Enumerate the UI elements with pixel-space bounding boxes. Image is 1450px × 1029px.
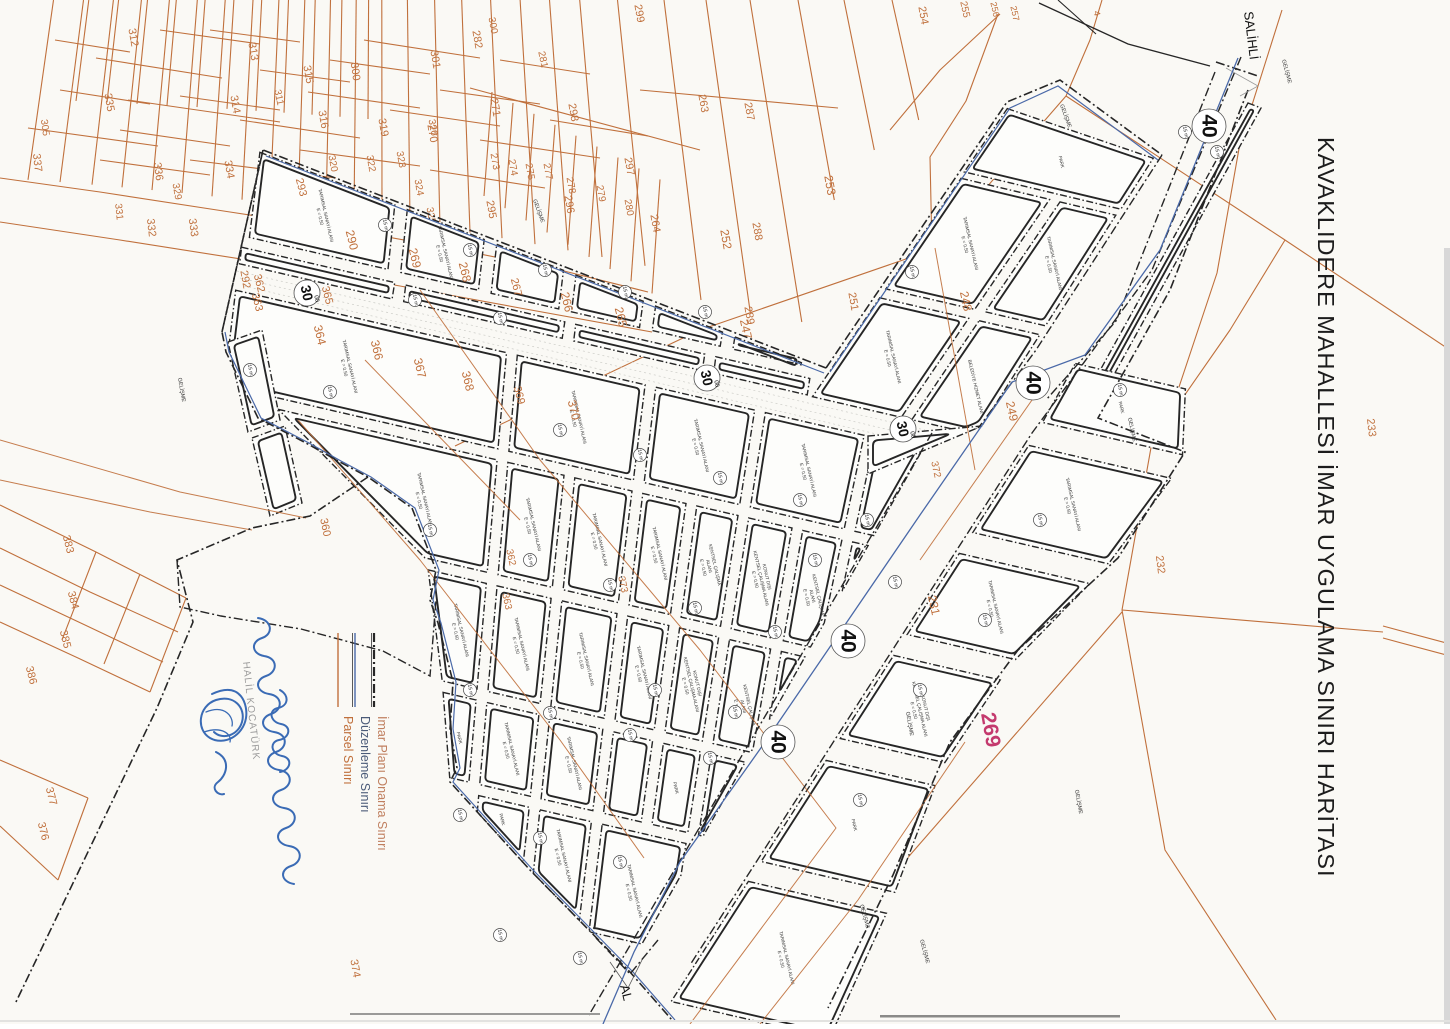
svg-text:332: 332 — [144, 218, 158, 238]
svg-text:337: 337 — [30, 153, 44, 173]
svg-text:İmar Planı Onama Sınırı: İmar Planı Onama Sınırı — [375, 716, 389, 851]
svg-text:331: 331 — [112, 203, 125, 221]
svg-text:333: 333 — [186, 218, 200, 238]
svg-text:232: 232 — [1153, 555, 1167, 575]
svg-text:40: 40 — [767, 730, 790, 753]
svg-text:Düzenleme Sınırı: Düzenleme Sınırı — [358, 716, 372, 813]
svg-text:300: 300 — [348, 62, 362, 82]
svg-text:40: 40 — [1198, 114, 1221, 137]
svg-text:233: 233 — [1364, 418, 1378, 438]
svg-text:40: 40 — [837, 629, 860, 652]
svg-text:40: 40 — [1022, 371, 1045, 394]
svg-text:336: 336 — [151, 162, 165, 182]
svg-text:Parsel Sınırı: Parsel Sınırı — [341, 716, 355, 785]
svg-text:KAVAKLIDERE MAHALLESİ İMAR UYG: KAVAKLIDERE MAHALLESİ İMAR UYGULAMA SINI… — [1313, 137, 1339, 878]
